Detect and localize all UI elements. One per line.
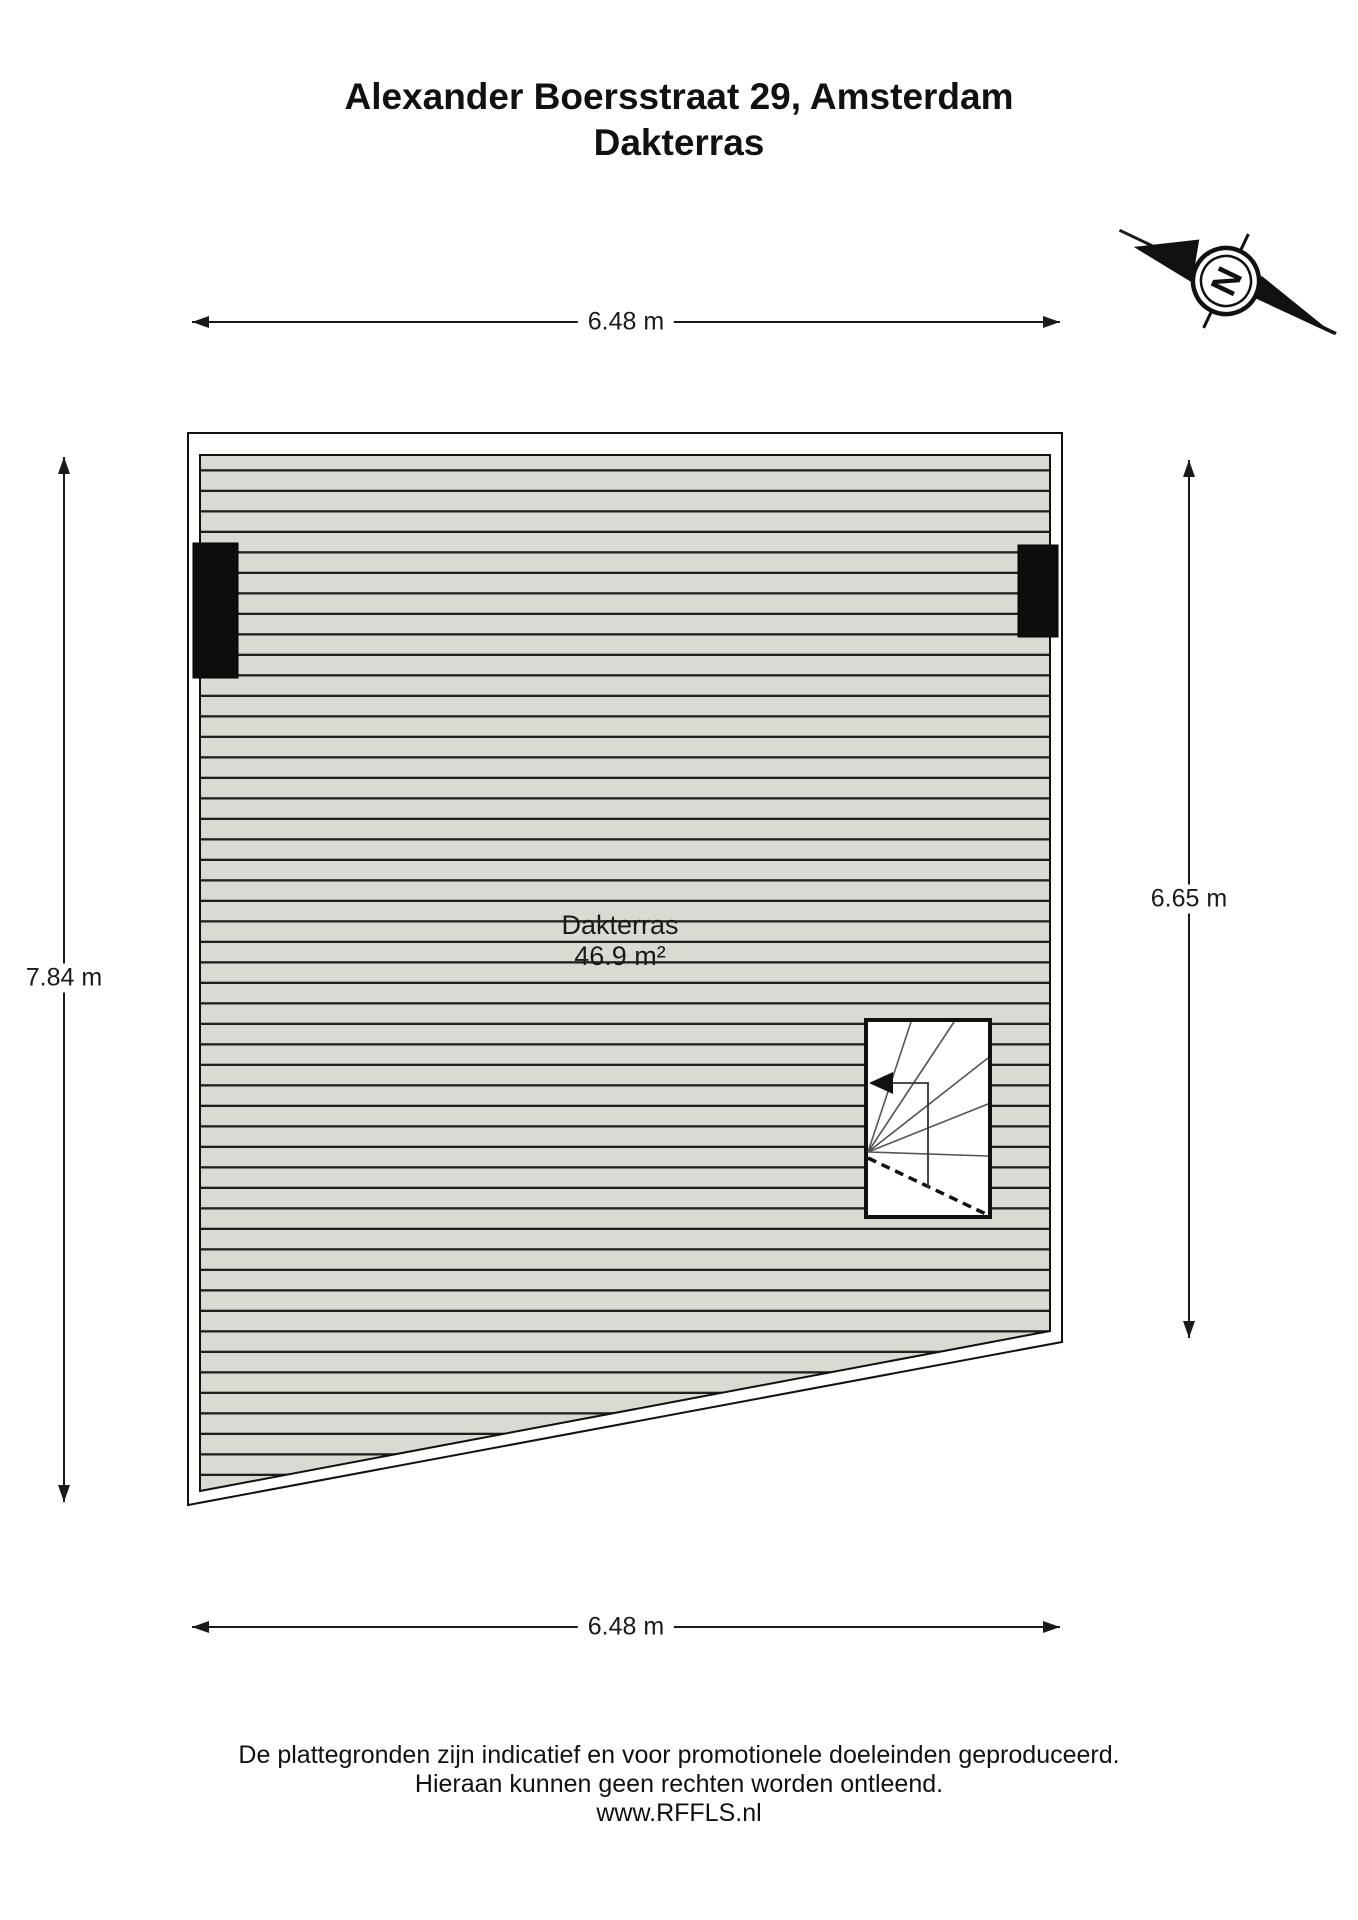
floorplan-drawing: N: [0, 0, 1358, 1920]
staircase: [866, 1020, 990, 1217]
dimension-label-right: 6.65 m: [1141, 885, 1237, 914]
north-compass-icon: N: [1097, 183, 1358, 380]
dimension-label-top: 6.48 m: [578, 308, 674, 337]
compass-needle-east-wing: [1252, 276, 1345, 336]
room-label: Dakterras 46.9 m²: [561, 910, 678, 972]
dimension-label-bottom: 6.48 m: [578, 1613, 674, 1642]
footer-website: www.RFFLS.nl: [0, 1799, 1358, 1828]
terrace-deck-surface: [200, 455, 1050, 1491]
dimension-label-left: 7.84 m: [16, 964, 112, 993]
floorplan-page: Alexander Boersstraat 29, Amsterdam Dakt…: [0, 0, 1358, 1920]
footer-line-1: De plattegronden zijn indicatief en voor…: [0, 1741, 1358, 1770]
chimney-block-left: [193, 543, 238, 678]
chimney-block-right: [1018, 545, 1058, 637]
room-area: 46.9 m²: [561, 941, 678, 972]
room-name: Dakterras: [561, 910, 678, 941]
footer-line-2: Hieraan kunnen geen rechten worden ontle…: [0, 1770, 1358, 1799]
footer-disclaimer: De plattegronden zijn indicatief en voor…: [0, 1741, 1358, 1828]
